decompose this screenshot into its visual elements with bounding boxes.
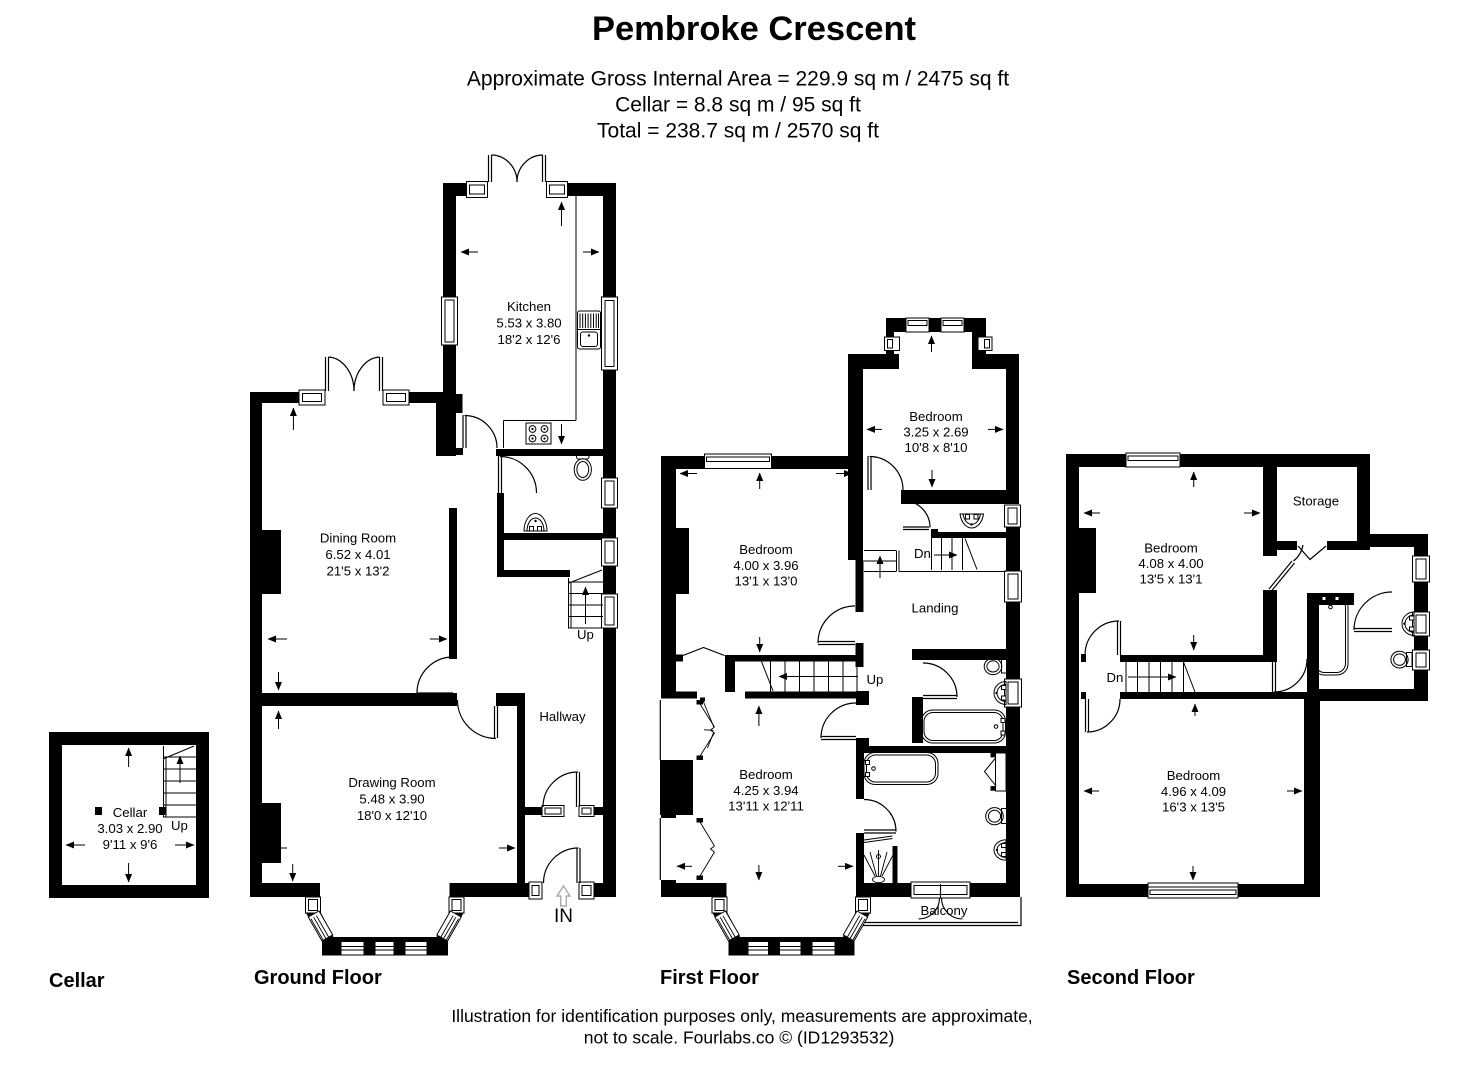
svg-text:21'5 x 13'2: 21'5 x 13'2 (327, 564, 390, 579)
svg-text:Landing: Landing (912, 601, 959, 616)
svg-text:4.25 x 3.94: 4.25 x 3.94 (733, 783, 798, 798)
svg-text:Approximate Gross Internal Are: Approximate Gross Internal Area = 229.9 … (467, 68, 1009, 91)
svg-text:Pembroke Crescent: Pembroke Crescent (592, 10, 917, 48)
svg-text:4.00 x 3.96: 4.00 x 3.96 (733, 558, 798, 573)
svg-text:Up: Up (577, 627, 594, 642)
svg-text:Storage: Storage (1293, 494, 1339, 509)
svg-text:Cellar: Cellar (49, 970, 105, 992)
svg-text:16'3 x 13'5: 16'3 x 13'5 (1162, 800, 1225, 815)
svg-text:18'2 x 12'6: 18'2 x 12'6 (498, 332, 561, 347)
svg-text:Bedroom: Bedroom (1167, 768, 1221, 783)
svg-text:Total = 238.7 sq m / 2570 sq f: Total = 238.7 sq m / 2570 sq ft (597, 120, 879, 143)
svg-text:4.96 x 4.09: 4.96 x 4.09 (1161, 784, 1226, 799)
svg-text:13'1 x 13'0: 13'1 x 13'0 (735, 574, 798, 589)
svg-text:13'11 x 12'11: 13'11 x 12'11 (728, 799, 804, 814)
svg-text:9'11 x 9'6: 9'11 x 9'6 (103, 837, 158, 852)
svg-text:3.25 x 2.69: 3.25 x 2.69 (903, 425, 968, 440)
svg-text:First Floor: First Floor (660, 967, 759, 989)
svg-text:Kitchen: Kitchen (507, 299, 551, 314)
svg-text:Bedroom: Bedroom (739, 542, 793, 557)
svg-text:18'0 x 12'10: 18'0 x 12'10 (357, 808, 427, 823)
svg-text:not to scale. Fourlabs.co © (I: not to scale. Fourlabs.co © (ID1293532) (584, 1028, 895, 1048)
svg-text:3.03 x 2.90: 3.03 x 2.90 (97, 821, 162, 836)
svg-text:Up: Up (867, 672, 884, 687)
svg-text:IN: IN (554, 906, 573, 927)
svg-text:Cellar: Cellar (113, 805, 148, 820)
svg-text:5.48 x 3.90: 5.48 x 3.90 (359, 792, 424, 807)
svg-text:Balcony: Balcony (921, 903, 968, 918)
svg-text:Ground Floor: Ground Floor (254, 967, 382, 989)
svg-text:Second Floor: Second Floor (1067, 967, 1195, 989)
svg-text:Bedroom: Bedroom (909, 409, 963, 424)
svg-text:Dn: Dn (914, 546, 931, 561)
svg-text:13'5 x 13'1: 13'5 x 13'1 (1140, 572, 1203, 587)
svg-text:Hallway: Hallway (539, 709, 586, 724)
svg-text:6.52 x 4.01: 6.52 x 4.01 (325, 547, 390, 562)
svg-text:Drawing Room: Drawing Room (348, 775, 435, 790)
svg-text:10'8 x 8'10: 10'8 x 8'10 (905, 440, 968, 455)
svg-text:Bedroom: Bedroom (739, 767, 793, 782)
svg-text:Cellar = 8.8 sq m / 95 sq ft: Cellar = 8.8 sq m / 95 sq ft (615, 94, 861, 117)
svg-text:Dining Room: Dining Room (320, 531, 396, 546)
svg-text:Illustration for identificatio: Illustration for identification purposes… (451, 1006, 1032, 1026)
svg-text:4.08 x 4.00: 4.08 x 4.00 (1138, 556, 1203, 571)
svg-text:5.53 x 3.80: 5.53 x 3.80 (496, 316, 561, 331)
svg-text:Bedroom: Bedroom (1144, 541, 1198, 556)
svg-text:Dn: Dn (1107, 670, 1124, 685)
svg-text:Up: Up (171, 818, 188, 833)
